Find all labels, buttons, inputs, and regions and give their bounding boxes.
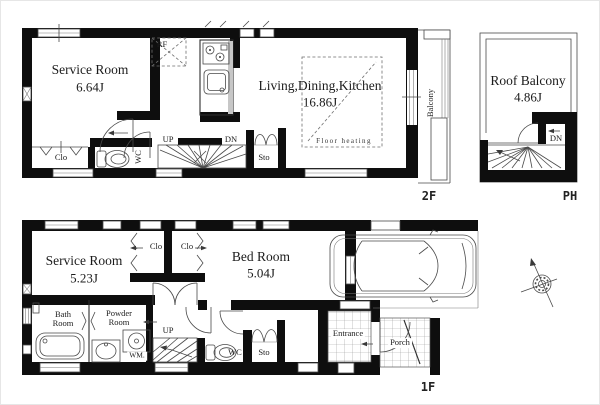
closet-label-2f: Clo: [55, 153, 67, 163]
door-icon-bedroom: [186, 307, 211, 333]
floor-1f-plan: [22, 220, 478, 375]
floor-label-1f: 1F: [421, 381, 435, 395]
door-icon-wc-1f: [220, 311, 243, 334]
door-icon-service-2f: [100, 119, 133, 152]
storage-doors-icon-2f: [254, 134, 278, 145]
service-room-1f-name: Service Room: [46, 253, 123, 269]
washing-machine-label: WM.: [127, 352, 147, 361]
washing-machine-icon: [123, 330, 150, 352]
floor-label-2f: 2F: [422, 190, 436, 204]
powder-room-line2: Room: [106, 318, 132, 327]
closet2-label: Clo: [181, 242, 193, 252]
floorplan-page: Service Room 6.64J Living,Dining,Kitchen…: [0, 0, 600, 405]
window-icons-2f: [23, 21, 421, 177]
stairs-down-label-2f: DN: [225, 135, 237, 145]
wc-label-1f: WC: [228, 348, 242, 358]
bed-room-area: 5.04J: [247, 267, 275, 282]
service-room-2f-area: 6.64J: [76, 81, 104, 96]
service-room-2f-name: Service Room: [52, 62, 129, 78]
bath-room-line2: Room: [53, 319, 74, 328]
walls-2f: [22, 28, 418, 178]
wc-label-2f: WC: [134, 150, 144, 164]
stairs-icon-1f: [153, 338, 197, 362]
powder-room-label: PowderRoom: [106, 309, 132, 327]
balcony-label: Balcony: [426, 89, 436, 117]
porch-label: Porch: [388, 338, 412, 348]
ldk-area: 16.86J: [303, 96, 337, 111]
storage-doors-icon-1f: [252, 330, 277, 342]
vanity-sink-icon: [92, 340, 120, 362]
stairs-icon-2f: [158, 145, 246, 168]
storage-label-1f: Sto: [258, 348, 269, 358]
floor-2f-plan: [22, 21, 450, 183]
bath-room-label: BathRoom: [53, 310, 74, 328]
roof-balcony-area: 4.86J: [514, 91, 542, 106]
floorplan-drawing: [0, 0, 600, 405]
compass-icon: [521, 258, 557, 307]
entrance-label: Entrance: [331, 329, 365, 339]
storage-label-2f: Sto: [258, 153, 269, 163]
kitchen-counter-icon: [200, 40, 233, 115]
roof-balcony-name: Roof Balcony: [490, 73, 565, 89]
stairs-up-label-2f: UP: [163, 135, 174, 145]
stairs-down-label-ph: DN: [550, 134, 562, 144]
closet1-label: Clo: [150, 242, 162, 252]
ldk-name: Living,Dining,Kitchen: [259, 78, 382, 94]
floor-heating-label: Floor heating: [316, 137, 372, 145]
fridge-label: RF: [157, 40, 167, 50]
stairs-up-label-1f: UP: [163, 326, 174, 336]
floor-ph-plan: [480, 33, 577, 182]
bed-room-name: Bed Room: [232, 249, 290, 265]
floor-label-ph: PH: [563, 190, 577, 204]
service-room-1f-area: 5.23J: [70, 272, 98, 287]
stairs-icon-ph: [488, 145, 565, 168]
